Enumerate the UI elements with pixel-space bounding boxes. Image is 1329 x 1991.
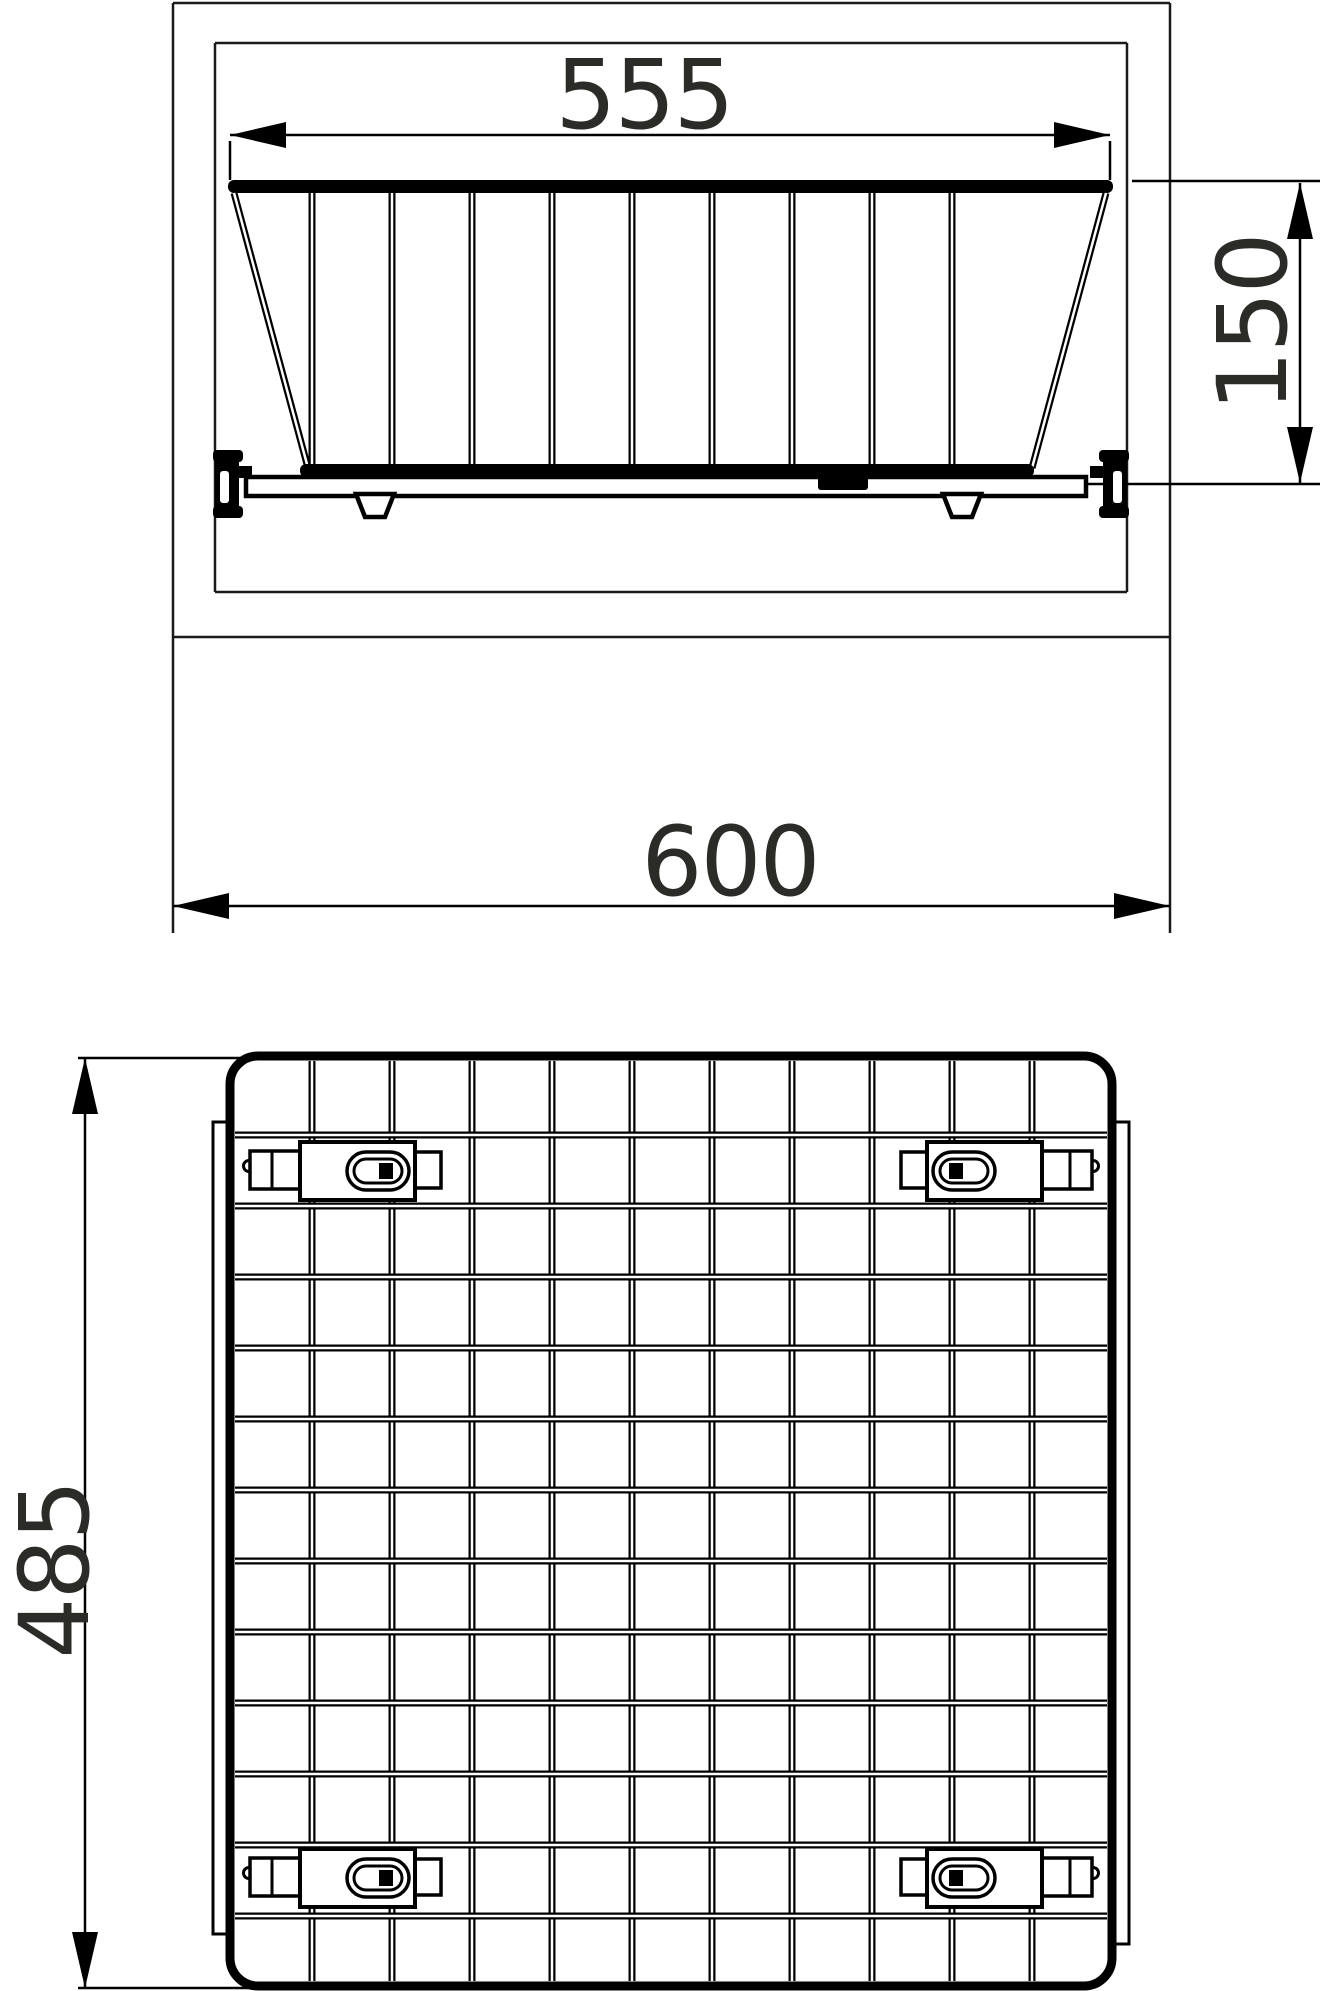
dimension-cabinet-width: 600: [173, 806, 1170, 919]
depth-dimension-label: 485: [0, 1481, 111, 1658]
basket-slanted-end-wires-highlight: [234, 193, 1106, 468]
arrow-down-icon: [72, 1932, 98, 1988]
plan-left-runner: [213, 1122, 227, 1934]
dimension-height: 150: [1197, 183, 1313, 483]
basket-rail-assembly: [213, 450, 1129, 518]
drawing-page: 555 150 600: [0, 0, 1329, 1991]
dimension-top-width: 555: [230, 39, 1110, 180]
arrow-left-icon: [173, 893, 229, 919]
technical-drawing: 555 150 600: [0, 0, 1329, 1991]
arrow-right-icon: [1114, 893, 1170, 919]
arrow-right-icon: [1054, 122, 1110, 148]
cabinet-width-dimension-label: 600: [641, 806, 818, 918]
basket-slanted-end-wires: [234, 193, 1106, 468]
basket-top-rail: [228, 180, 1113, 193]
basket-front-view: [228, 180, 1113, 477]
arrow-left-icon: [230, 122, 286, 148]
front-view: 555 150 600: [173, 3, 1320, 933]
arrow-up-icon: [72, 1058, 98, 1114]
top-width-dimension-label: 555: [555, 39, 732, 151]
arrow-down-icon: [1287, 427, 1313, 483]
plan-right-runner: [1115, 1122, 1129, 1944]
rail-clamp-block: [818, 473, 868, 490]
rail-hook-right: [943, 494, 981, 517]
height-dimension-label: 150: [1197, 234, 1309, 411]
basket-vertical-wires-highlight: [312, 193, 952, 467]
rail-hook-left: [356, 494, 394, 517]
arrow-up-icon: [1287, 183, 1313, 239]
plan-view: 485: [0, 1056, 1129, 1988]
